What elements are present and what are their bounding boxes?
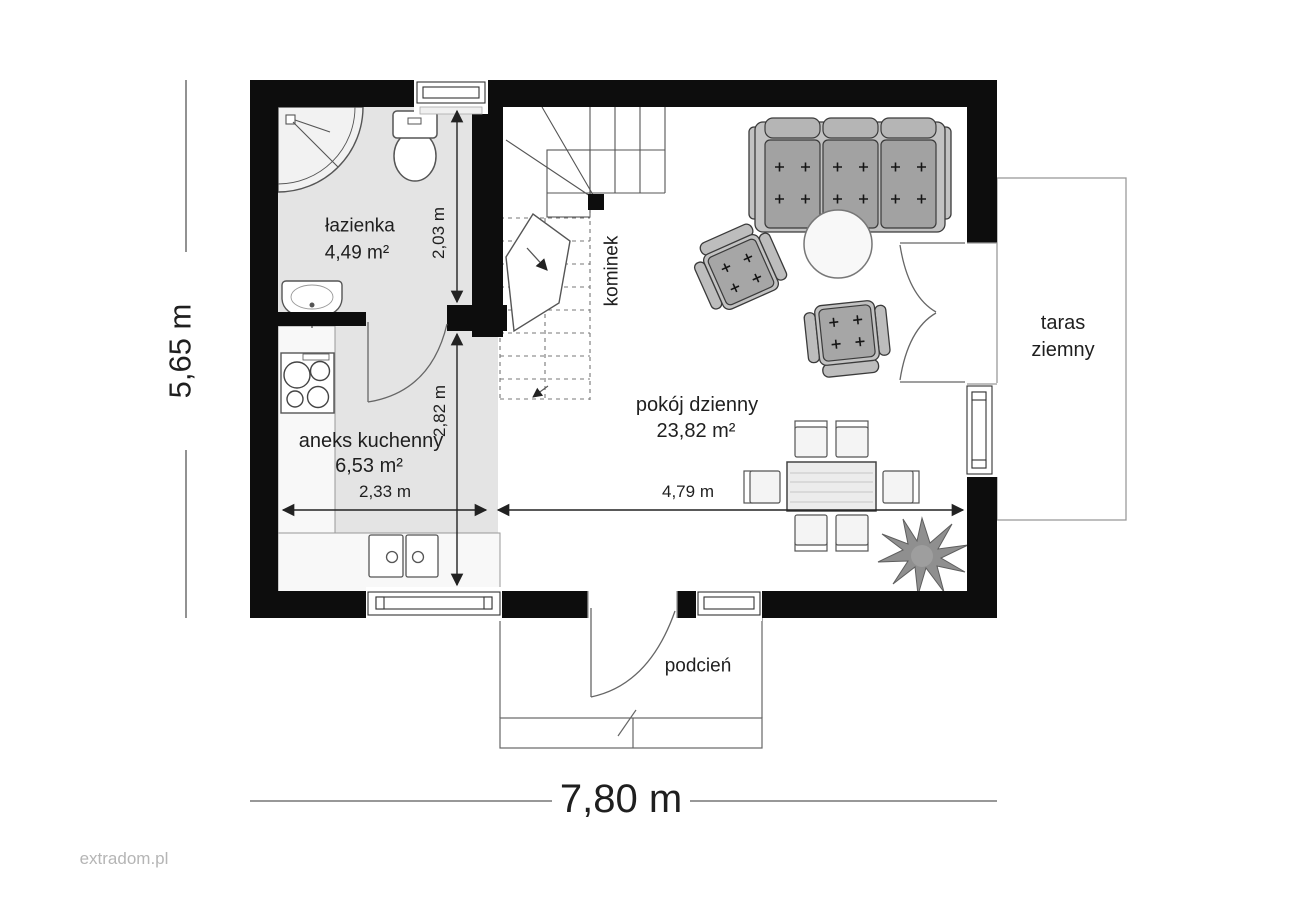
fireplace-label: kominek	[602, 236, 625, 307]
floor-plan-page: łazienka 4,49 m² aneks kuchenny 6,53 m² …	[0, 0, 1306, 900]
bathroom-wall	[278, 312, 366, 326]
entrance-door	[591, 608, 675, 697]
stair-newel-post	[588, 194, 604, 210]
kitchen-label: aneks kuchenny	[299, 429, 444, 453]
dining-table-icon	[787, 462, 876, 511]
terrace-french-door	[900, 245, 936, 380]
dining-set	[744, 421, 919, 551]
armchair-icon	[803, 299, 892, 379]
window-icon	[366, 587, 502, 621]
kitchen-area: 6,53 m²	[335, 454, 403, 478]
bathroom-label: łazienka	[325, 216, 395, 239]
porch-outline	[500, 618, 762, 748]
terrace-label: taras ziemny	[1015, 310, 1111, 364]
window-icon	[963, 383, 1001, 477]
kitchen-sink-icon	[369, 535, 438, 577]
floor-plan-drawing	[0, 0, 1306, 900]
living-room-area: 23,82 m²	[657, 419, 736, 443]
porch-label: podcień	[665, 656, 732, 679]
dim-overall-width: 7,80 m	[560, 775, 682, 823]
dim-kitchen-width: 2,33 m	[359, 482, 411, 502]
plant-icon	[878, 518, 968, 595]
dim-bathroom-depth: 2,03 m	[429, 207, 449, 259]
window-icon	[414, 76, 488, 114]
window-icon	[696, 587, 762, 621]
dim-living-width: 4,79 m	[662, 482, 714, 502]
living-room-label: pokój dzienny	[636, 393, 758, 417]
dim-hall-depth: 2,82 m	[430, 385, 450, 437]
watermark: extradom.pl	[80, 849, 169, 869]
stair-wall	[472, 107, 503, 337]
fireplace-icon	[506, 214, 570, 331]
bathroom-area: 4,49 m²	[325, 243, 389, 266]
cooktop-icon	[281, 353, 334, 413]
dim-overall-depth: 5,65 m	[161, 304, 198, 399]
coffee-table-icon	[804, 210, 872, 278]
toilet-icon	[393, 111, 437, 181]
